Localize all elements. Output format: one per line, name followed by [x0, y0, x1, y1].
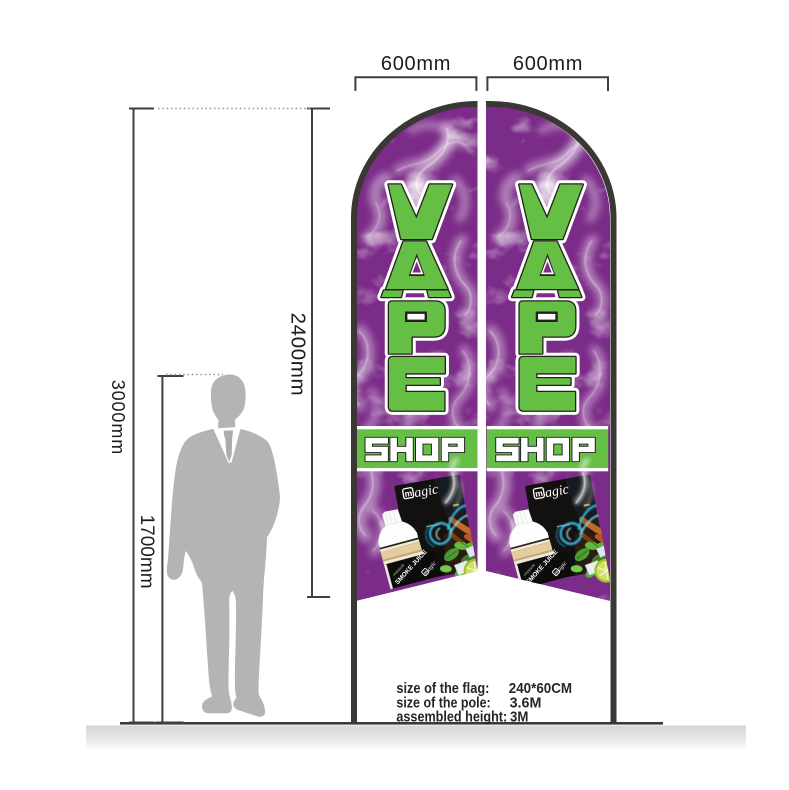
- svg-text:3000mm: 3000mm: [108, 380, 128, 455]
- svg-text:600mm: 600mm: [381, 53, 451, 75]
- svg-text:1700mm: 1700mm: [136, 515, 157, 589]
- svg-text:3M: 3M: [510, 709, 528, 726]
- svg-text:2400mm: 2400mm: [286, 313, 309, 397]
- svg-text:600mm: 600mm: [513, 53, 583, 75]
- svg-text:assembled height:: assembled height:: [396, 709, 507, 726]
